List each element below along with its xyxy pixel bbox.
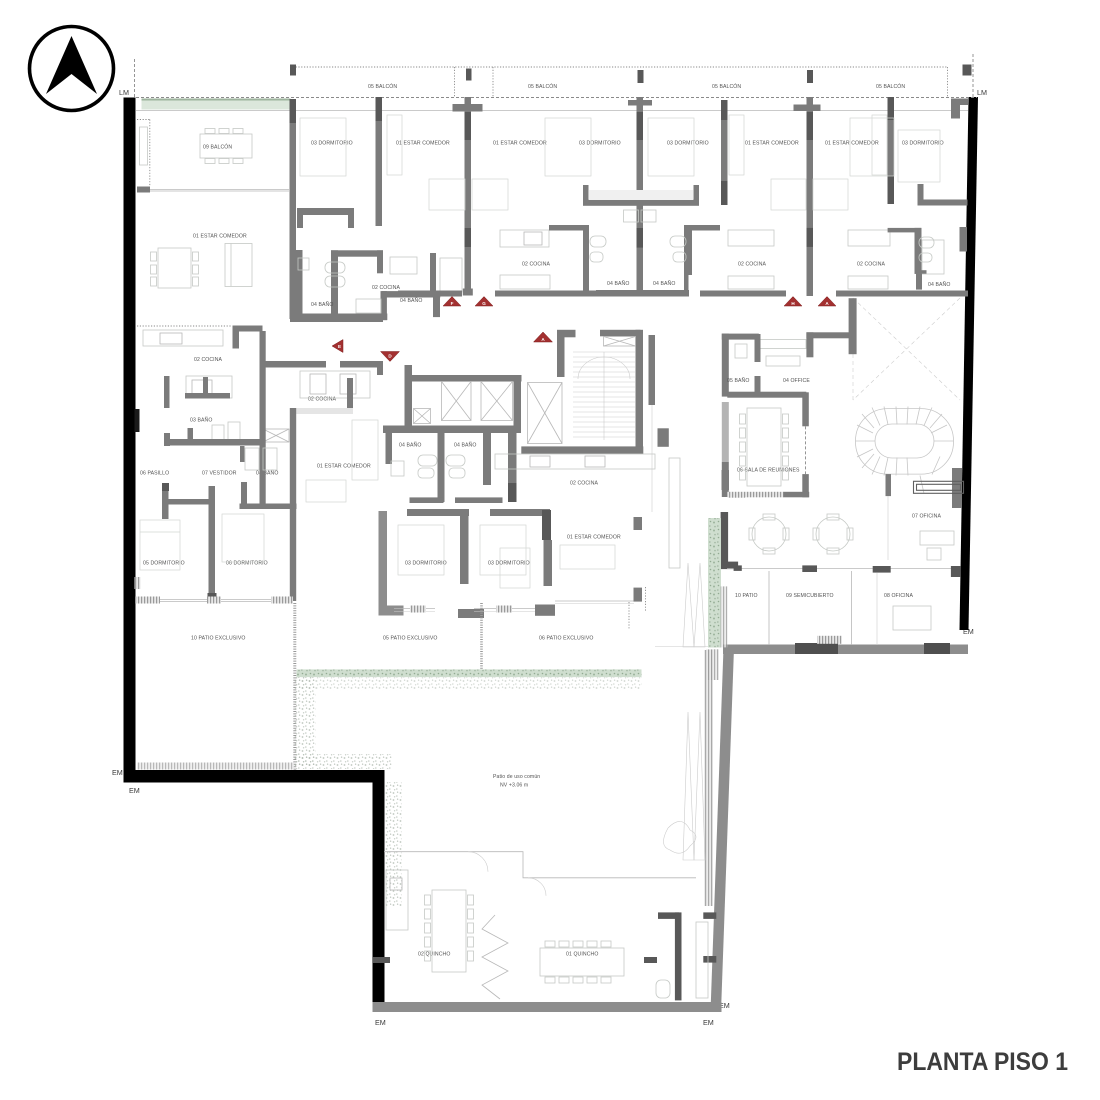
svg-text:07 VESTIDOR: 07 VESTIDOR: [202, 471, 237, 477]
svg-text:EM: EM: [375, 1018, 386, 1027]
svg-text:01 ESTAR COMEDOR: 01 ESTAR COMEDOR: [493, 141, 547, 147]
svg-text:01 QUINCHO: 01 QUINCHO: [566, 952, 598, 958]
svg-text:02 COCINA: 02 COCINA: [570, 481, 599, 487]
svg-text:02 COCINA: 02 COCINA: [738, 262, 767, 268]
svg-text:NV +3.06 m: NV +3.06 m: [500, 783, 528, 789]
svg-text:05 BALCÓN: 05 BALCÓN: [368, 83, 397, 90]
svg-text:F: F: [451, 301, 454, 306]
svg-text:02 COCINA: 02 COCINA: [372, 285, 401, 291]
svg-text:LM: LM: [977, 88, 987, 97]
svg-text:G: G: [482, 301, 486, 306]
svg-text:02 COCINA: 02 COCINA: [308, 397, 337, 403]
svg-text:02 COCINA: 02 COCINA: [522, 262, 551, 268]
svg-text:05 DORMITORIO: 05 DORMITORIO: [143, 561, 185, 567]
svg-text:EM: EM: [129, 786, 140, 795]
svg-text:E: E: [338, 344, 341, 349]
svg-text:EM: EM: [703, 1018, 714, 1027]
svg-text:PLANTA PISO 1: PLANTA PISO 1: [897, 1048, 1068, 1076]
svg-text:01 ESTAR COMEDOR: 01 ESTAR COMEDOR: [745, 141, 799, 147]
svg-text:03 DORMITORIO: 03 DORMITORIO: [667, 141, 709, 147]
svg-text:03 BAÑO: 03 BAÑO: [190, 417, 212, 424]
svg-text:EM: EM: [112, 768, 123, 777]
svg-text:08 OFICINA: 08 OFICINA: [884, 593, 913, 599]
svg-text:09 SEMICUBIERTO: 09 SEMICUBIERTO: [786, 593, 834, 599]
svg-text:04 BAÑO: 04 BAÑO: [653, 280, 675, 287]
svg-text:10 PATIO: 10 PATIO: [735, 593, 758, 599]
svg-text:03 DORMITORIO: 03 DORMITORIO: [311, 141, 353, 147]
svg-text:04 BAÑO: 04 BAÑO: [607, 280, 629, 287]
svg-text:09 BALCÓN: 09 BALCÓN: [203, 144, 232, 151]
svg-text:05 BALCÓN: 05 BALCÓN: [876, 83, 905, 90]
svg-text:02 QUINCHO: 02 QUINCHO: [418, 952, 450, 958]
svg-text:01 ESTAR COMEDOR: 01 ESTAR COMEDOR: [825, 141, 879, 147]
svg-text:06 DORMITORIO: 06 DORMITORIO: [226, 561, 268, 567]
svg-text:01 ESTAR COMEDOR: 01 ESTAR COMEDOR: [193, 234, 247, 240]
svg-text:05 BAÑO: 05 BAÑO: [727, 377, 749, 384]
svg-text:10 PATIO EXCLUSIVO: 10 PATIO EXCLUSIVO: [191, 636, 245, 642]
svg-text:05 BALCÓN: 05 BALCÓN: [528, 83, 557, 90]
svg-text:04 BAÑO: 04 BAÑO: [399, 442, 421, 449]
svg-text:02 COCINA: 02 COCINA: [194, 357, 223, 363]
svg-text:03 DORMITORIO: 03 DORMITORIO: [579, 141, 621, 147]
svg-text:04 BAÑO: 04 BAÑO: [400, 297, 422, 304]
svg-text:02 COCINA: 02 COCINA: [857, 262, 886, 268]
svg-text:04 BAÑO: 04 BAÑO: [454, 442, 476, 449]
svg-text:04 BAÑO: 04 BAÑO: [311, 301, 333, 308]
svg-text:06 SALA DE REUNIONES: 06 SALA DE REUNIONES: [737, 468, 800, 474]
svg-text:01 ESTAR COMEDOR: 01 ESTAR COMEDOR: [317, 464, 371, 470]
svg-text:07 OFICINA: 07 OFICINA: [912, 514, 941, 520]
svg-text:03 DORMITORIO: 03 DORMITORIO: [405, 561, 447, 567]
svg-text:03 DORMITORIO: 03 DORMITORIO: [488, 561, 530, 567]
svg-text:04 OFFICE: 04 OFFICE: [783, 378, 810, 384]
svg-text:Patio de uso común: Patio de uso común: [493, 774, 540, 780]
svg-text:05 PATIO EXCLUSIVO: 05 PATIO EXCLUSIVO: [383, 636, 437, 642]
svg-text:06 PASILLO: 06 PASILLO: [140, 471, 169, 477]
svg-text:LM: LM: [119, 88, 129, 97]
svg-text:03 DORMITORIO: 03 DORMITORIO: [902, 141, 944, 147]
svg-text:04 BAÑO: 04 BAÑO: [256, 470, 278, 477]
svg-text:04 BAÑO: 04 BAÑO: [928, 281, 950, 288]
svg-text:05 BALCÓN: 05 BALCÓN: [712, 83, 741, 90]
svg-text:06 PATIO EXCLUSIVO: 06 PATIO EXCLUSIVO: [539, 636, 593, 642]
svg-text:01 ESTAR COMEDOR: 01 ESTAR COMEDOR: [567, 535, 621, 541]
svg-text:01 ESTAR COMEDOR: 01 ESTAR COMEDOR: [396, 141, 450, 147]
